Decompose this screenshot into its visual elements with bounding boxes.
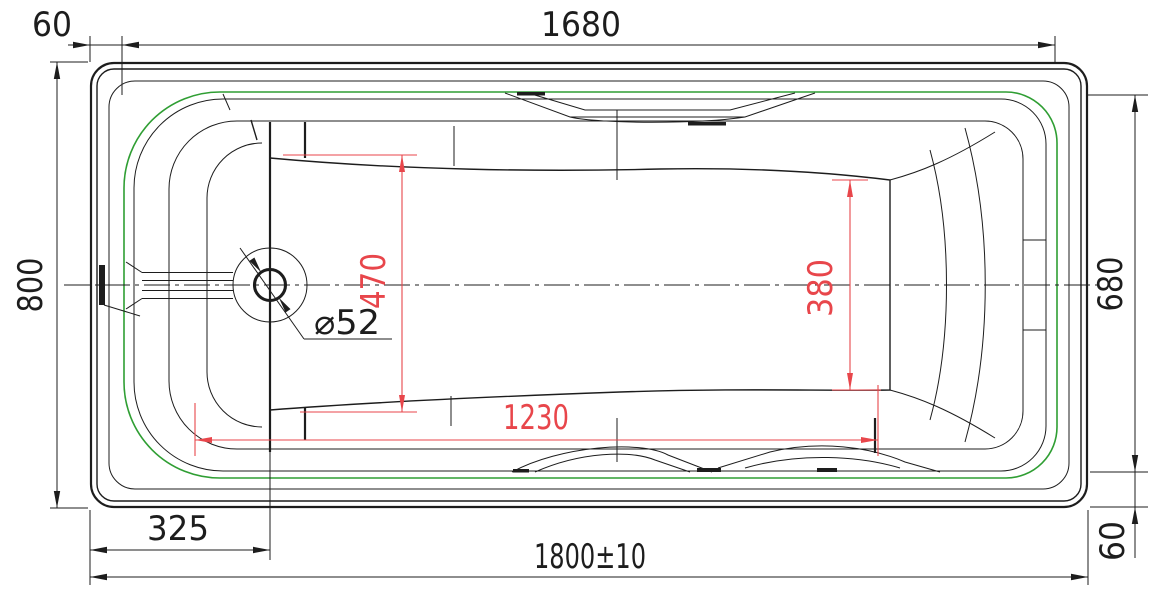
dim-overall-length: 1800±10 (90, 510, 1088, 585)
dim-label-inner-rim-width: 680 (1091, 257, 1131, 312)
dim-drain-center-from-left: 325 (90, 509, 270, 585)
bathtub-technical-drawing: 60 1680 800 680 60 325 (0, 0, 1169, 601)
arrow (90, 574, 107, 580)
dim-label-drain-center-from-left: 325 (147, 509, 209, 549)
arrow (847, 180, 853, 197)
arrow (122, 42, 139, 48)
dim-label-rim-length-top: 1680 (541, 5, 621, 45)
arrow (195, 437, 212, 443)
arrow (1071, 574, 1088, 580)
dim-label-overall-length: 1800±10 (534, 537, 646, 577)
arrow (1038, 42, 1055, 48)
dim-rim-length-top: 1680 (541, 5, 1055, 62)
centerline (64, 285, 1104, 560)
dim-label-rim-offset-bottom-right: 60 (1093, 521, 1133, 561)
dim-basin-floor-width-front: 470 (283, 155, 417, 412)
dim-label-basin-floor-length: 1230 (503, 398, 569, 438)
arrow (399, 395, 405, 412)
arrow (253, 547, 270, 553)
dim-label-overall-width: 800 (11, 258, 51, 313)
arrow (399, 155, 405, 172)
arrow (73, 42, 90, 48)
dim-inner-rim-width: 680 (1087, 95, 1148, 472)
arrow (54, 62, 60, 79)
dim-label-basin-floor-width-front: 470 (354, 253, 394, 309)
arrow (90, 547, 107, 553)
dim-label-rim-offset-top-left: 60 (32, 5, 72, 45)
arrow (1132, 95, 1138, 112)
arrow (1132, 455, 1138, 472)
arrow (54, 491, 60, 508)
arrow (847, 373, 853, 390)
dim-rim-offset-bottom-right: 60 (1090, 472, 1148, 561)
dim-label-basin-floor-width-rear: 380 (801, 259, 841, 317)
drawing-sheet: 60 1680 800 680 60 325 (0, 0, 1169, 601)
